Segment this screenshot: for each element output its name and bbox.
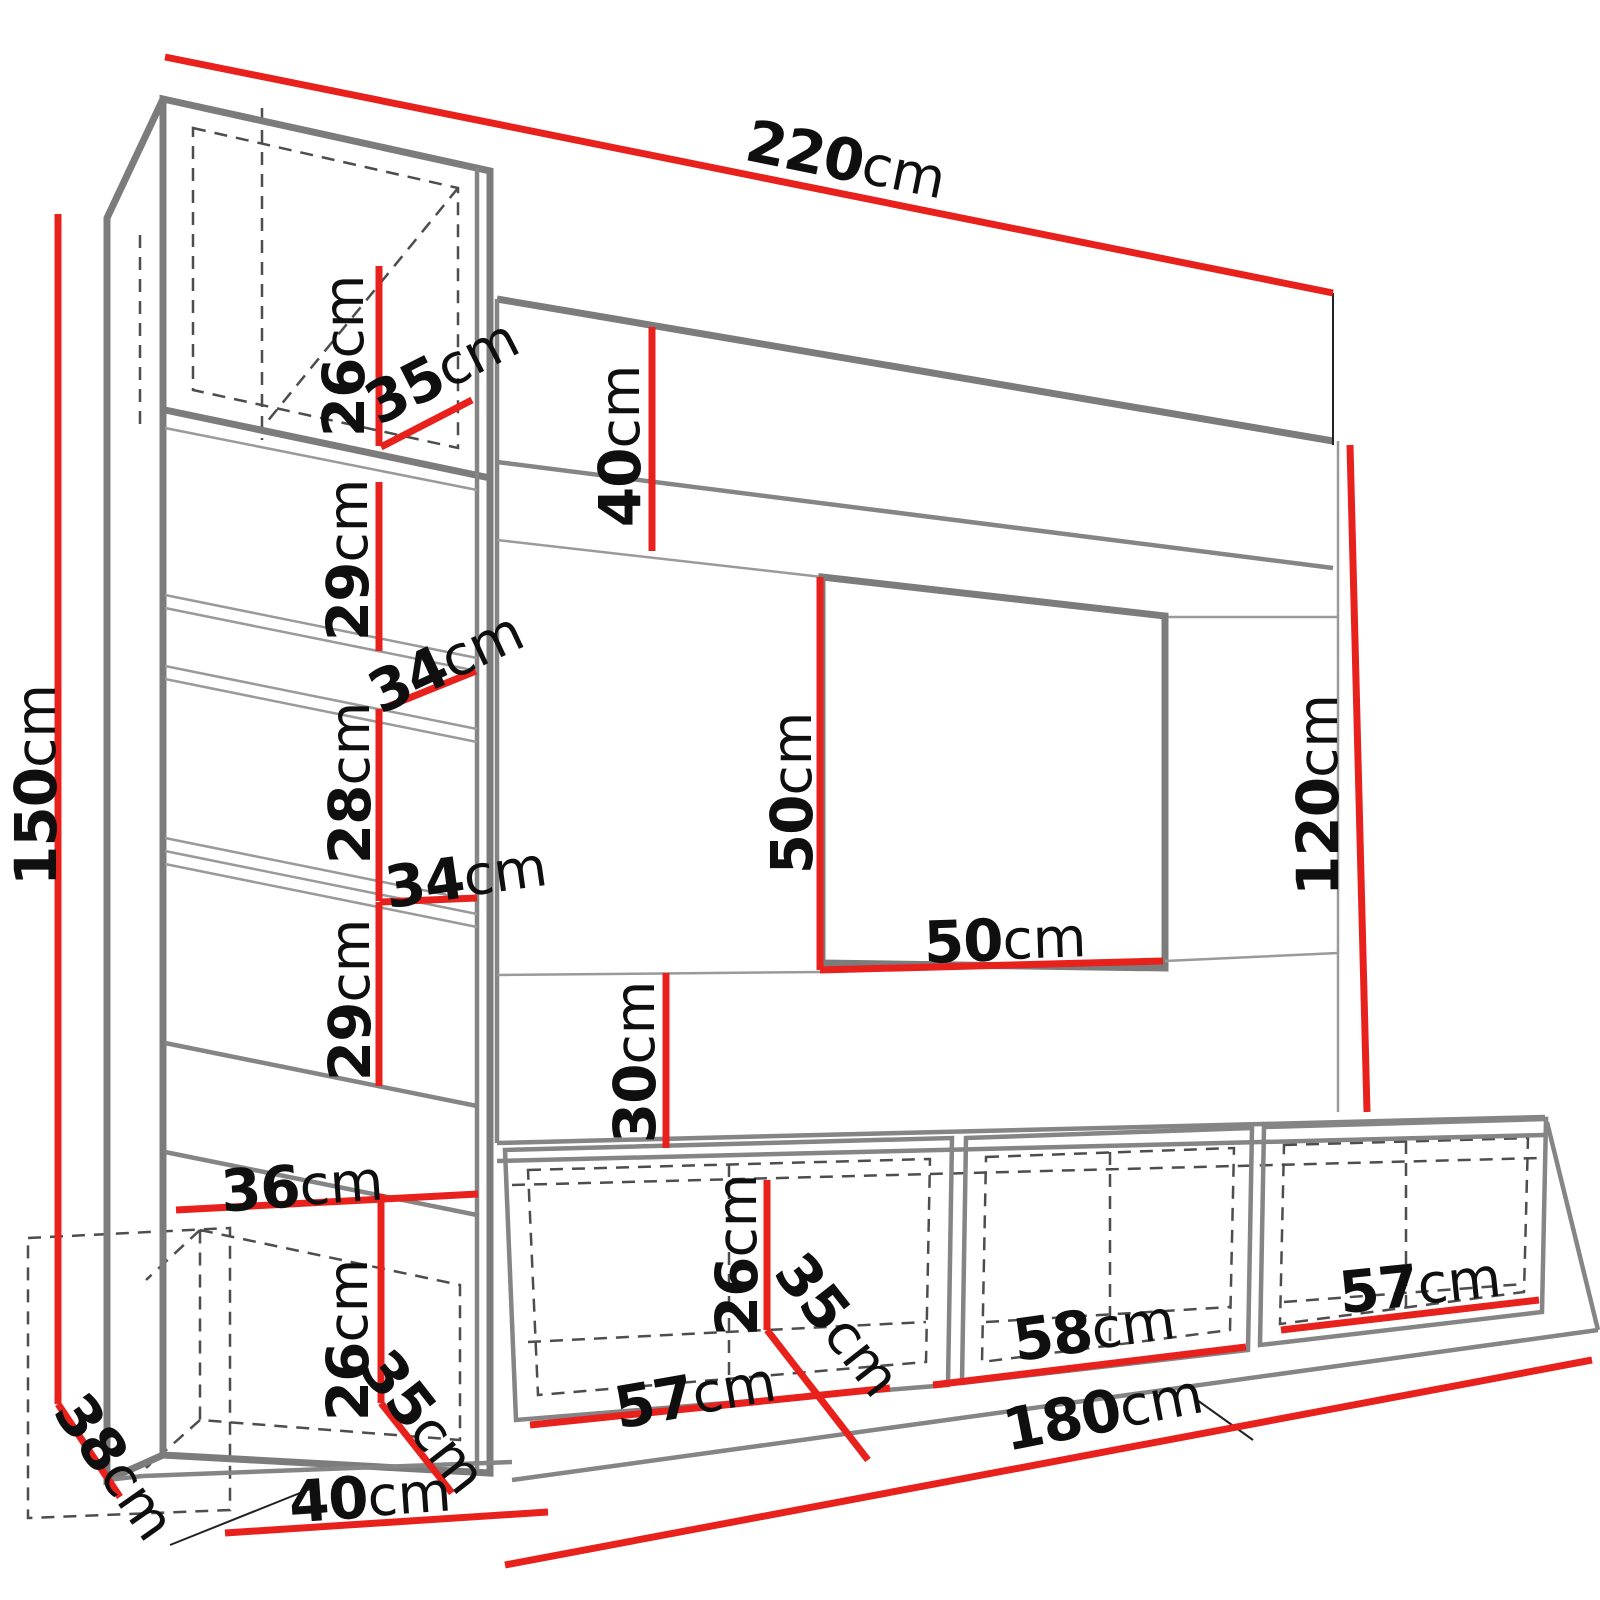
label-header-panel-height: 40cm [586,365,654,528]
label-media-cabinet-1-width: 57cm [609,1347,781,1442]
label-media-cabinet-3-width: 57cm [1336,1243,1505,1328]
label-left-column-width: 40cm [287,1457,454,1536]
label-tv-recess-width: 50cm [923,903,1088,977]
label-lower-shelf-width: 36cm [219,1146,386,1225]
dim-line-right-panel-h [1350,445,1367,1112]
label-media-cabinet-depth: 35cm [761,1240,915,1410]
label-shelf-opening-3: 29cm [316,919,384,1082]
furniture-dimension-diagram: 220cm 150cm 26cm 35cm 40cm 29cm 34cm 28c… [0,0,1600,1600]
label-total-height: 150cm [2,684,70,886]
label-shelf-opening-1: 29cm [314,479,382,642]
label-tv-recess-height: 50cm [758,712,826,875]
label-below-recess-height: 30cm [601,981,669,1144]
diagram-canvas: 220cm 150cm 26cm 35cm 40cm 29cm 34cm 28c… [0,0,1600,1600]
label-shelf-opening-2: 28cm [316,702,384,865]
label-right-panel-height: 120cm [1284,694,1352,896]
label-media-cabinet-height: 26cm [703,1174,771,1337]
label-top-cabinet-height: 26cm [310,275,378,438]
